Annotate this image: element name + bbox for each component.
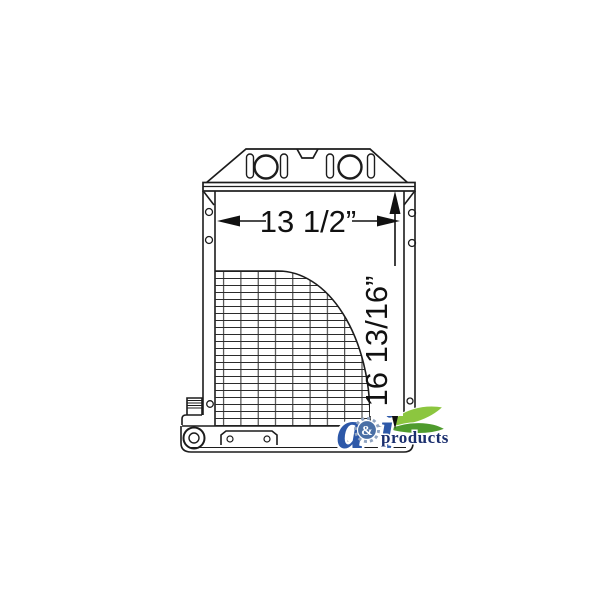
dimension-arrow-left [217,216,240,227]
logo-ampersand: & [361,424,373,439]
width-dimension: 13 1/2” [217,204,400,239]
bolt-hole [206,209,213,216]
side-channel-left [203,191,215,426]
header-band [203,183,415,192]
side-channel-right [404,191,416,423]
dimension-arrow-right [377,216,400,227]
inlet-stub [182,398,202,425]
radiator-technical-drawing: a i & products 13 1/2” 16 13/16” [0,0,600,600]
dimension-arrow-up [390,191,401,214]
logo-gear-icon: & [356,419,379,442]
top-tank-outline [206,149,408,183]
width-dimension-label: 13 1/2” [260,204,357,239]
logo-products-text: products [381,428,449,447]
mounting-plate [221,431,277,445]
bolt-hole [207,401,214,408]
plate-hole [264,436,270,442]
bolt-hole [206,237,213,244]
top-tank [206,149,408,183]
height-dimension-label: 16 13/16” [359,276,394,407]
height-dimension: 16 13/16” [359,191,403,429]
bolt-hole [407,398,413,404]
outlet-fitting [184,428,205,449]
product-image: a i & products 13 1/2” 16 13/16” [0,0,600,600]
plate-hole [227,436,233,442]
